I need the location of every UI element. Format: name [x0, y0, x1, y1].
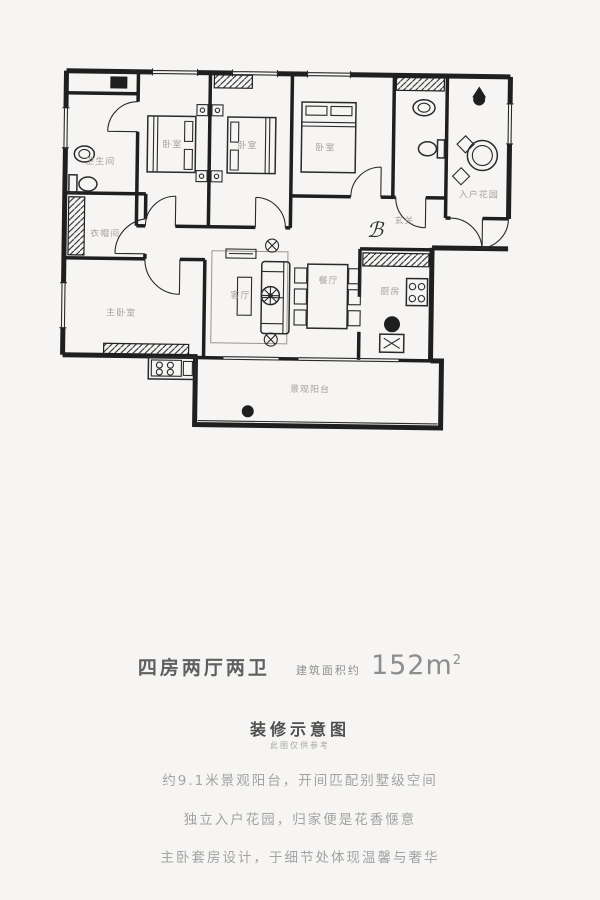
room-label-bedroom-c: 卧室 [315, 141, 335, 153]
tv-icon [226, 249, 256, 258]
summary-row: 四房两厅两卫 建筑面积约 152m2 [0, 652, 600, 680]
plant-icon [472, 86, 486, 105]
caption-note: 此图仅供参考 [0, 740, 600, 751]
bathroom-fixtures [412, 100, 445, 158]
water-heater-icon [380, 316, 405, 352]
outer-walls [62, 71, 511, 429]
sofa-icon [261, 261, 290, 333]
wardrobe-icon [68, 197, 85, 255]
chair-icon [452, 136, 474, 185]
room-label-cloakroom: 衣帽间 [90, 227, 120, 239]
round-table-icon [467, 140, 497, 170]
area-number: 152m [371, 650, 453, 681]
room-label-kitchen: 厨房 [380, 285, 400, 297]
area-label: 建筑面积约 [296, 662, 361, 678]
feature-line: 约9.1米景观阳台，开间匹配别墅级空间 [0, 769, 600, 789]
balcony-detail [242, 405, 254, 417]
room-label-balcony: 景观阳台 [290, 383, 330, 396]
drain-dot [242, 405, 254, 417]
toilet-icon [418, 140, 444, 158]
foyer-flourish: ℬ [366, 218, 384, 242]
sink-icon [413, 100, 435, 116]
room-label-bedroom-a: 卧室 [162, 138, 182, 150]
stove-icon [406, 278, 427, 305]
room-label-living-room: 客厅 [230, 289, 250, 301]
caption-title: 装修示意图 [0, 716, 600, 740]
area-value: 152m2 [371, 652, 462, 679]
listing-page: { "page": { "background": "#f6f5f3" }, "… [0, 0, 600, 900]
room-label-dining-room: 餐厅 [319, 274, 339, 286]
room-label-entry-garden: 入户花园 [459, 188, 499, 201]
bed-icon [301, 102, 356, 173]
cabinet-icon [104, 343, 189, 355]
equipment-platform [148, 357, 195, 380]
dining-table-icon [294, 264, 361, 329]
toilet-icon [69, 175, 97, 193]
area-sup: 2 [453, 653, 462, 668]
ceiling-fan-icon [261, 239, 280, 346]
entry-garden-furniture [452, 86, 498, 185]
room-label-bathroom: 卫生间 [85, 155, 115, 167]
room-label-master-bedroom: 主卧室 [106, 306, 136, 318]
feature-line: 主卧套房设计，于细节处体现温馨与奢华 [0, 846, 600, 866]
water-heater-icon [110, 76, 127, 88]
floorplan-drawing: 卫生间 衣帽间 主卧室 卧室 卧室 卧室 入户花园 玄关 客厅 餐厅 厨房 景观… [47, 53, 552, 452]
floorplan: 卫生间 衣帽间 主卧室 卧室 卧室 卧室 入户花园 玄关 客厅 餐厅 厨房 景观… [47, 53, 552, 452]
room-label-foyer: 玄关 [394, 214, 414, 226]
feature-line: 独立入户花园，归家便是花香惬意 [0, 808, 600, 828]
layout-type: 四房两厅两卫 [138, 653, 270, 680]
room-label-bedroom-b: 卧室 [237, 139, 257, 151]
